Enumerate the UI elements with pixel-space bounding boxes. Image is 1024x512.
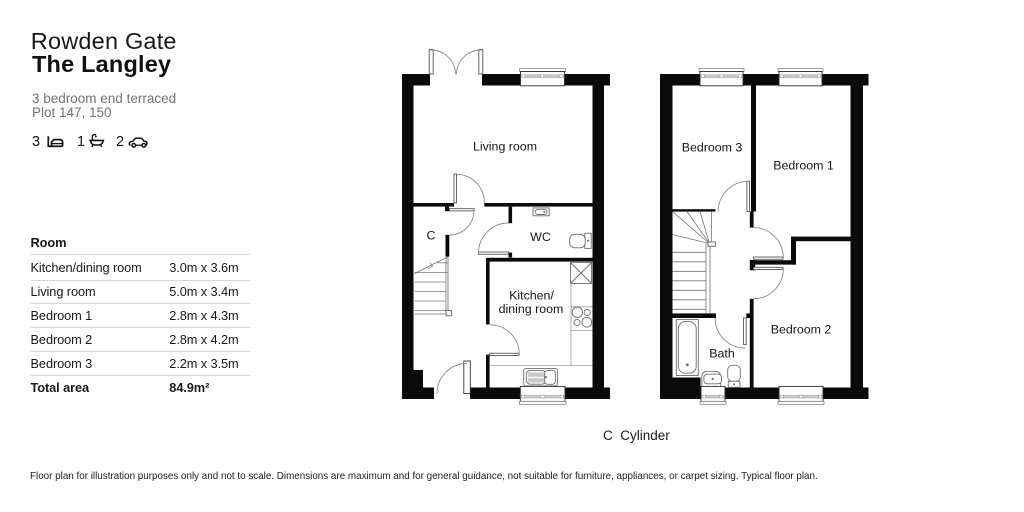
svg-text:Kitchen/: Kitchen/ [509, 289, 554, 303]
svg-text:Bedroom 3: Bedroom 3 [682, 141, 743, 155]
svg-text:WC: WC [530, 230, 551, 244]
svg-text:C: C [427, 229, 436, 243]
svg-text:Living room: Living room [473, 140, 537, 154]
svg-text:Bedroom 1: Bedroom 1 [773, 159, 834, 173]
svg-text:Bedroom 2: Bedroom 2 [771, 323, 832, 337]
svg-text:dining room: dining room [499, 302, 564, 316]
svg-text:Bath: Bath [709, 346, 735, 360]
